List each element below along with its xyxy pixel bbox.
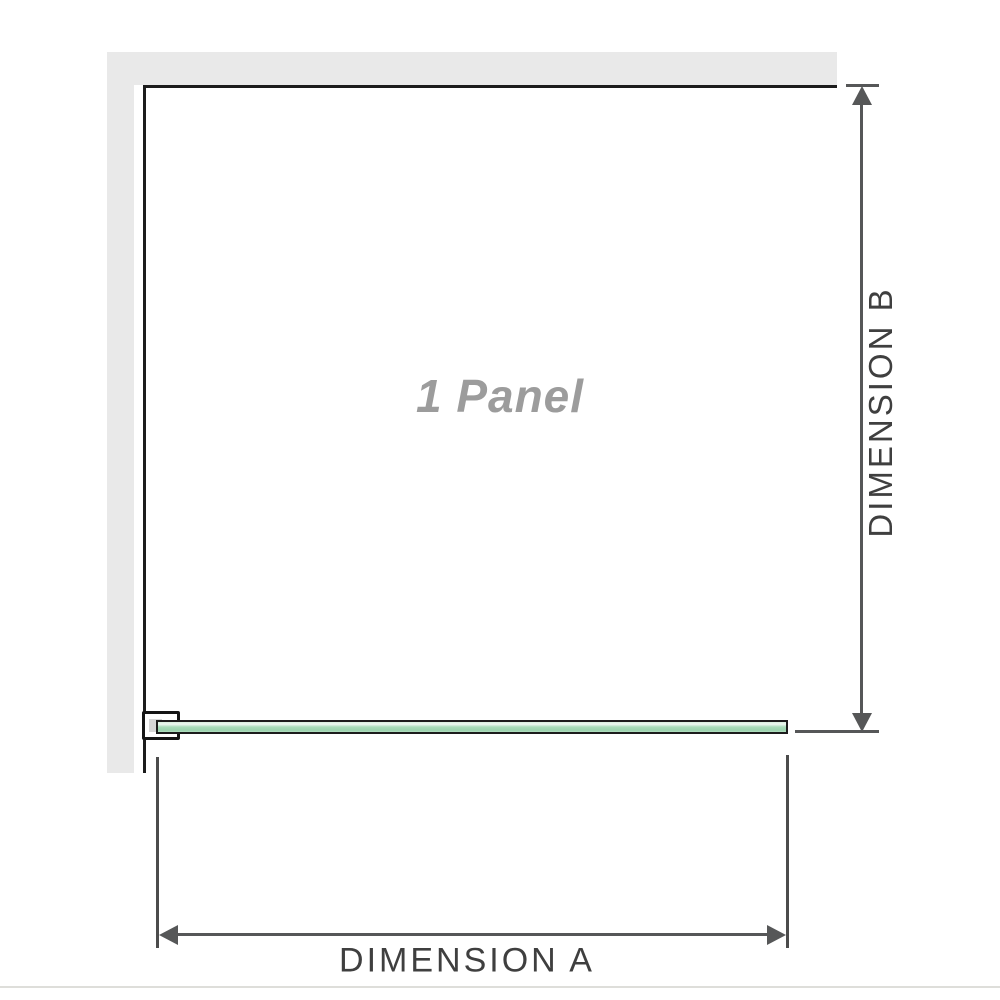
dimension-a-label: DIMENSION A xyxy=(339,942,595,981)
dimension-a-arrow-left-icon xyxy=(159,925,178,945)
panel-outline-top xyxy=(143,85,837,88)
glass-panel-bar xyxy=(156,720,788,734)
dimension-b-arrow-up-icon xyxy=(852,86,872,105)
dimension-b-arrow-down-icon xyxy=(852,713,872,732)
dimension-a-extension-right xyxy=(786,755,789,948)
panel-outline-left xyxy=(143,85,146,773)
dimension-a-extension-left xyxy=(156,757,159,948)
panel-label: 1 Panel xyxy=(416,369,584,423)
dimension-a-arrow-right-icon xyxy=(767,925,786,945)
dimension-a-line xyxy=(170,933,775,936)
dimension-b-label: DIMENSION B xyxy=(862,286,900,537)
wall-top xyxy=(107,52,837,85)
wall-left xyxy=(107,52,134,773)
ground-line xyxy=(0,986,1000,988)
diagram-canvas: 1 Panel DIMENSION B DIMENSION A xyxy=(0,0,1000,1000)
